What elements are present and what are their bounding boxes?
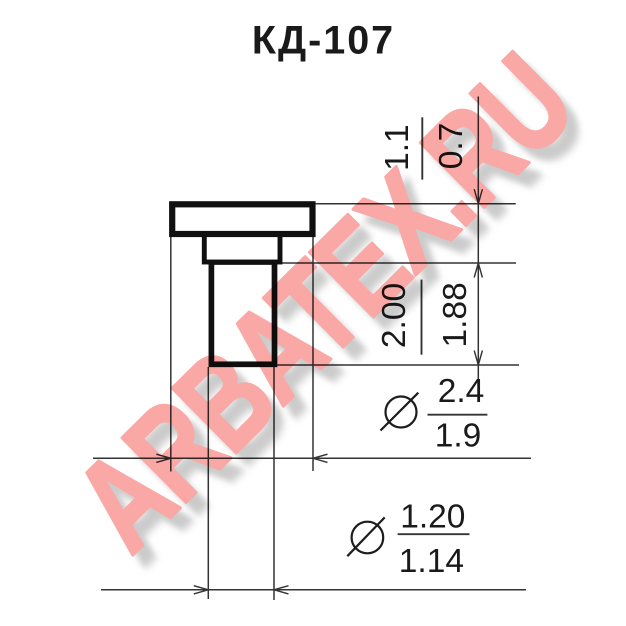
svg-text:КД-107: КД-107 — [252, 18, 395, 62]
svg-text:1.20: 1.20 — [400, 498, 465, 535]
svg-text:1.9: 1.9 — [435, 417, 482, 454]
svg-text:1.14: 1.14 — [399, 543, 464, 580]
svg-text:2.4: 2.4 — [438, 373, 485, 410]
